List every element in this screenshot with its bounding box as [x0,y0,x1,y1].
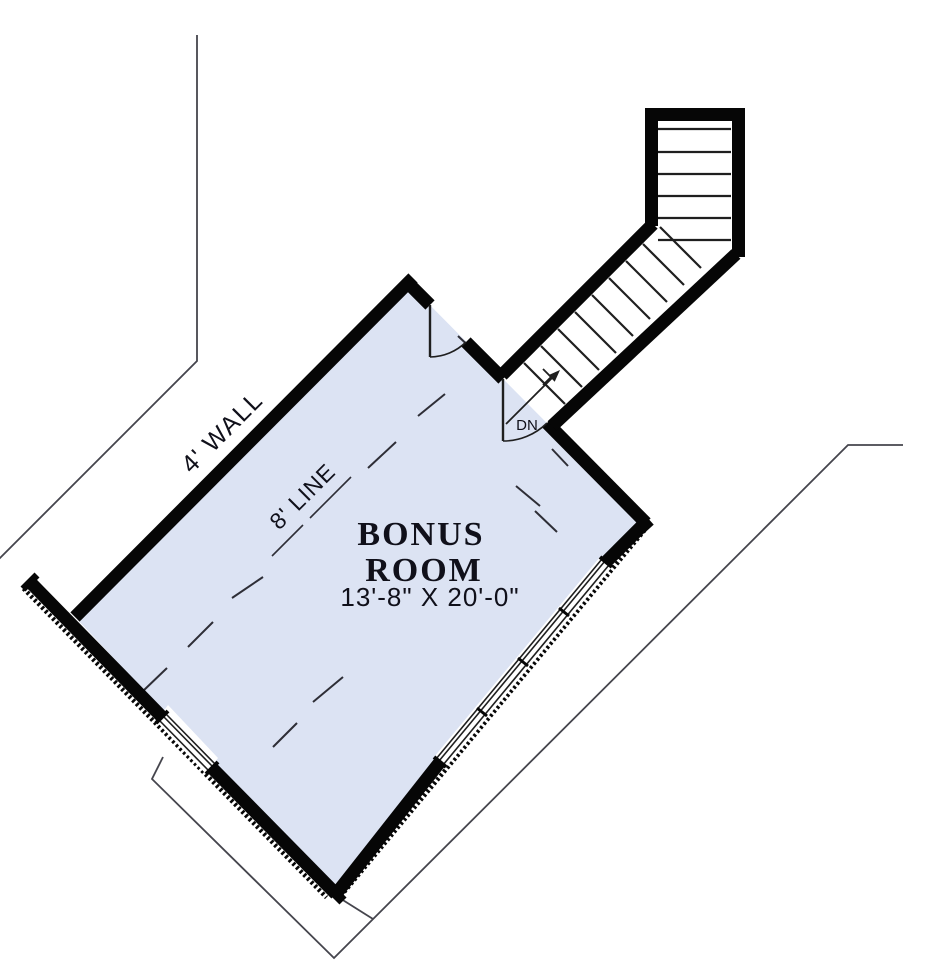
roofline-upper-left [0,35,197,562]
room-dimensions: 13'-8" X 20'-0" [340,582,519,612]
east-corner-cap [641,518,650,528]
staircase [505,121,732,424]
floor-plan-drawing: 4' WALL 8' LINE BONUS ROOM 13'-8" X 20'-… [0,0,950,977]
room-title-line1: BONUS [357,516,484,553]
floor-plan-page: 4' WALL 8' LINE BONUS ROOM 13'-8" X 20'-… [0,0,950,977]
stairs-down-label: DN [516,417,538,434]
